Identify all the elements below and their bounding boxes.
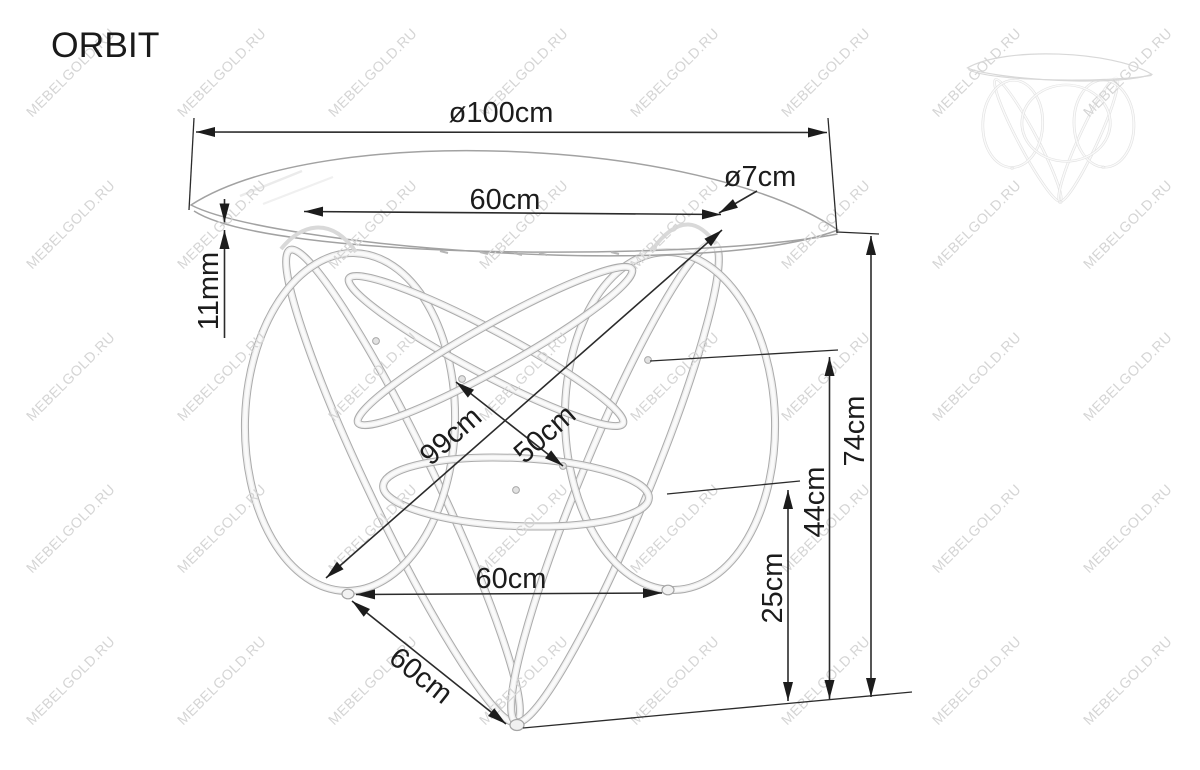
svg-text:44cm: 44cm	[799, 467, 831, 538]
svg-text:ORBIT: ORBIT	[51, 25, 159, 65]
svg-text:60cm: 60cm	[476, 563, 547, 595]
svg-text:ø7cm: ø7cm	[724, 161, 797, 193]
svg-text:74cm: 74cm	[839, 396, 871, 467]
svg-text:ø100cm: ø100cm	[449, 97, 554, 129]
svg-text:25cm: 25cm	[757, 553, 789, 624]
svg-text:11mm: 11mm	[193, 252, 225, 330]
svg-text:60cm: 60cm	[470, 184, 541, 216]
